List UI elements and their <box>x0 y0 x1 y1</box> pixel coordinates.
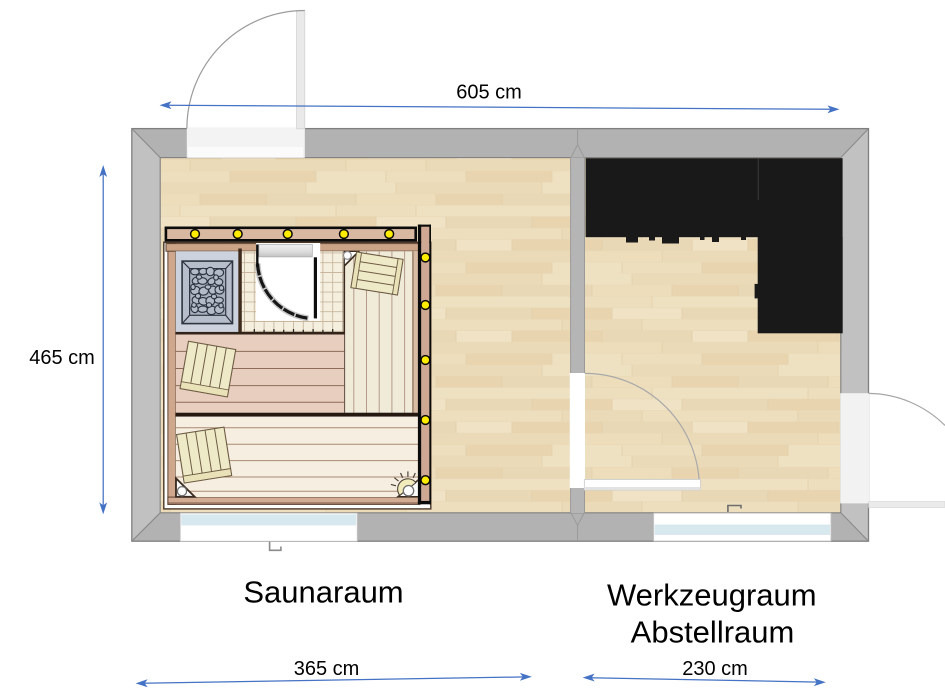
svg-text:465 cm: 465 cm <box>29 347 95 369</box>
svg-text:365 cm: 365 cm <box>294 658 360 680</box>
svg-text:230 cm: 230 cm <box>682 658 748 680</box>
svg-text:Abstellraum: Abstellraum <box>631 615 795 650</box>
svg-text:Werkzeugraum: Werkzeugraum <box>607 578 817 613</box>
svg-text:Saunaraum: Saunaraum <box>243 575 403 610</box>
svg-text:605 cm: 605 cm <box>456 82 522 104</box>
